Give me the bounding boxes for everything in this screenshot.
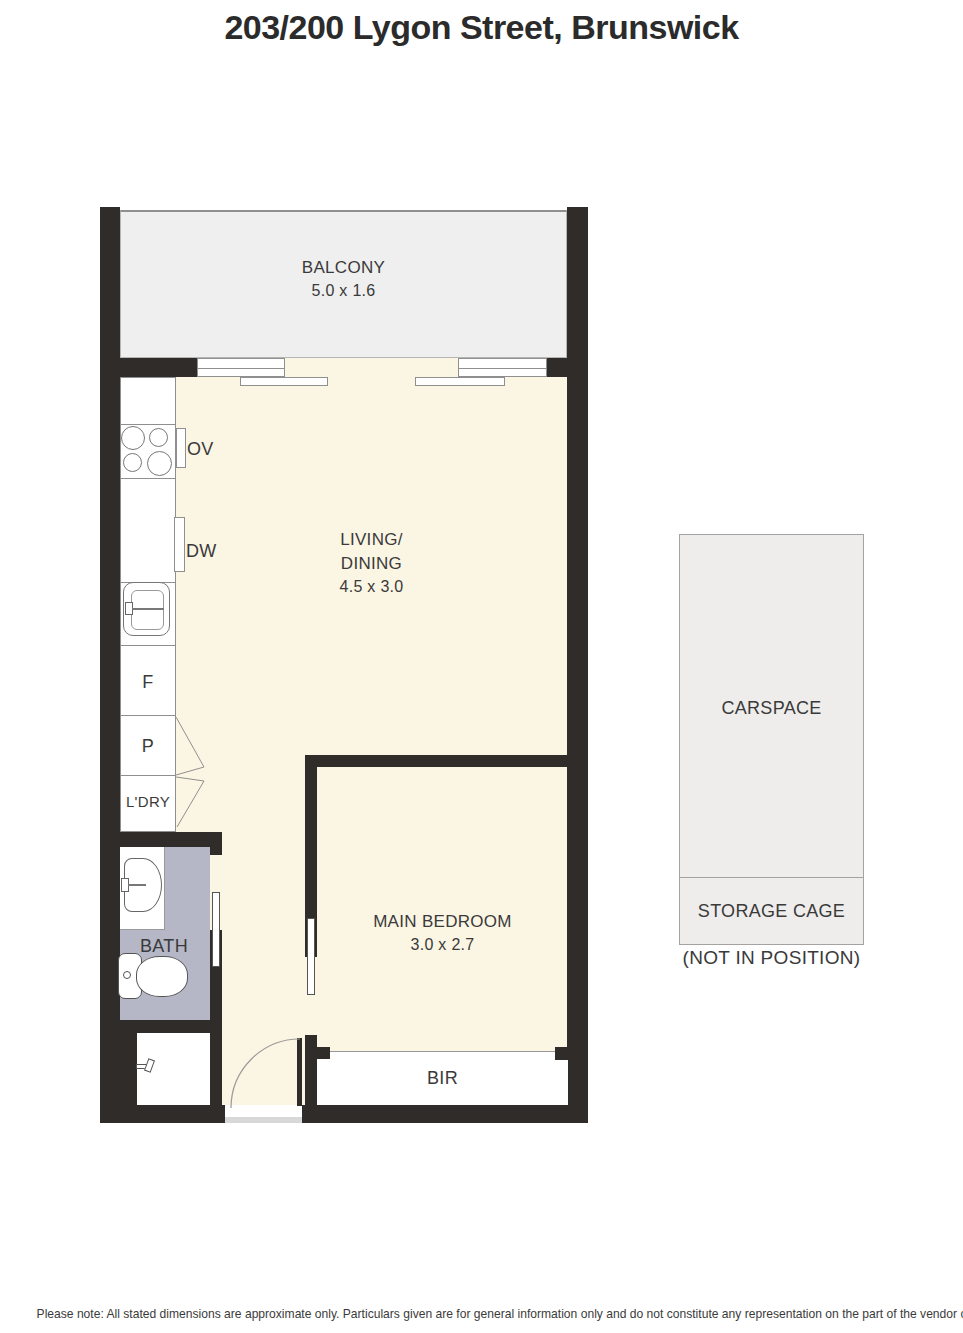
living-label-line1: LIVING/ [176, 530, 567, 550]
bir-stub-right [555, 1047, 569, 1060]
kitchen-bench [120, 377, 176, 425]
cooktop-burner-icon [123, 453, 142, 472]
bottom-wall-left [100, 1105, 225, 1123]
bir-label: BIR [317, 1068, 568, 1089]
living-dims: 4.5 x 3.0 [176, 578, 567, 596]
bath-right-wall-upper [210, 832, 222, 855]
kitchen-bench-2 [120, 478, 176, 583]
basin-tap-spout [128, 884, 146, 886]
entry-door-arc-icon [231, 1039, 301, 1109]
not-in-position-note: (NOT IN POSITION) [649, 947, 894, 969]
oven-panel [176, 428, 186, 468]
entry-threshold [225, 1117, 302, 1123]
balcony-dims: 5.0 x 1.6 [120, 282, 567, 300]
living-label-line2: DINING [176, 554, 567, 574]
dishwasher-label: DW [186, 541, 232, 562]
bath-bottom-wall [118, 1020, 222, 1033]
left-wall [100, 207, 120, 1123]
balcony-label: BALCONY [120, 258, 567, 278]
laundry-label: L'DRY [118, 793, 178, 810]
bedroom-left-wall-lower [305, 1035, 317, 1108]
carspace-label: CARSPACE [679, 698, 864, 719]
toilet-bowl-icon [136, 956, 188, 997]
kitchen-tap-spout [132, 608, 164, 610]
pantry-laundry-door-icon [175, 715, 207, 831]
cooktop-burner-icon [147, 451, 172, 476]
sliding-door-leaf-left [240, 377, 328, 386]
floorplan-page: 203/200 Lygon Street, Brunswick BALCONY … [0, 0, 963, 1333]
nook-left-fill [120, 1033, 137, 1105]
fridge-label: F [120, 672, 176, 693]
bath-top-wall [118, 832, 222, 847]
oven-label: OV [187, 439, 227, 460]
bedroom-label: MAIN BEDROOM [317, 912, 568, 932]
kitchen-sink-inner [131, 590, 164, 630]
bedroom-sliding-door [307, 918, 315, 995]
balcony-wall-left-segment [120, 358, 197, 377]
page-title: 203/200 Lygon Street, Brunswick [0, 8, 963, 47]
balcony-doorway-opening [285, 358, 458, 377]
sliding-glass-door-right [458, 358, 547, 377]
sliding-door-leaf-right [415, 377, 505, 386]
sliding-glass-door-left [197, 358, 285, 377]
disclaimer-text: Please note: All stated dimensions are a… [0, 1306, 963, 1321]
bath-sliding-door [212, 892, 220, 967]
toilet-button-icon [123, 971, 131, 979]
pantry-label: P [120, 736, 176, 757]
bir-stub-left [317, 1047, 330, 1059]
bedroom-top-wall [305, 755, 568, 767]
cooktop-burner-icon [149, 428, 168, 447]
cooktop-burner-icon [121, 426, 145, 450]
bottom-wall-right [302, 1105, 588, 1123]
bedroom-dims: 3.0 x 2.7 [317, 936, 568, 954]
right-wall [567, 207, 588, 1123]
storage-cage-label: STORAGE CAGE [671, 901, 872, 922]
balcony-wall-right-segment [547, 358, 567, 377]
dishwasher-panel [174, 517, 185, 572]
